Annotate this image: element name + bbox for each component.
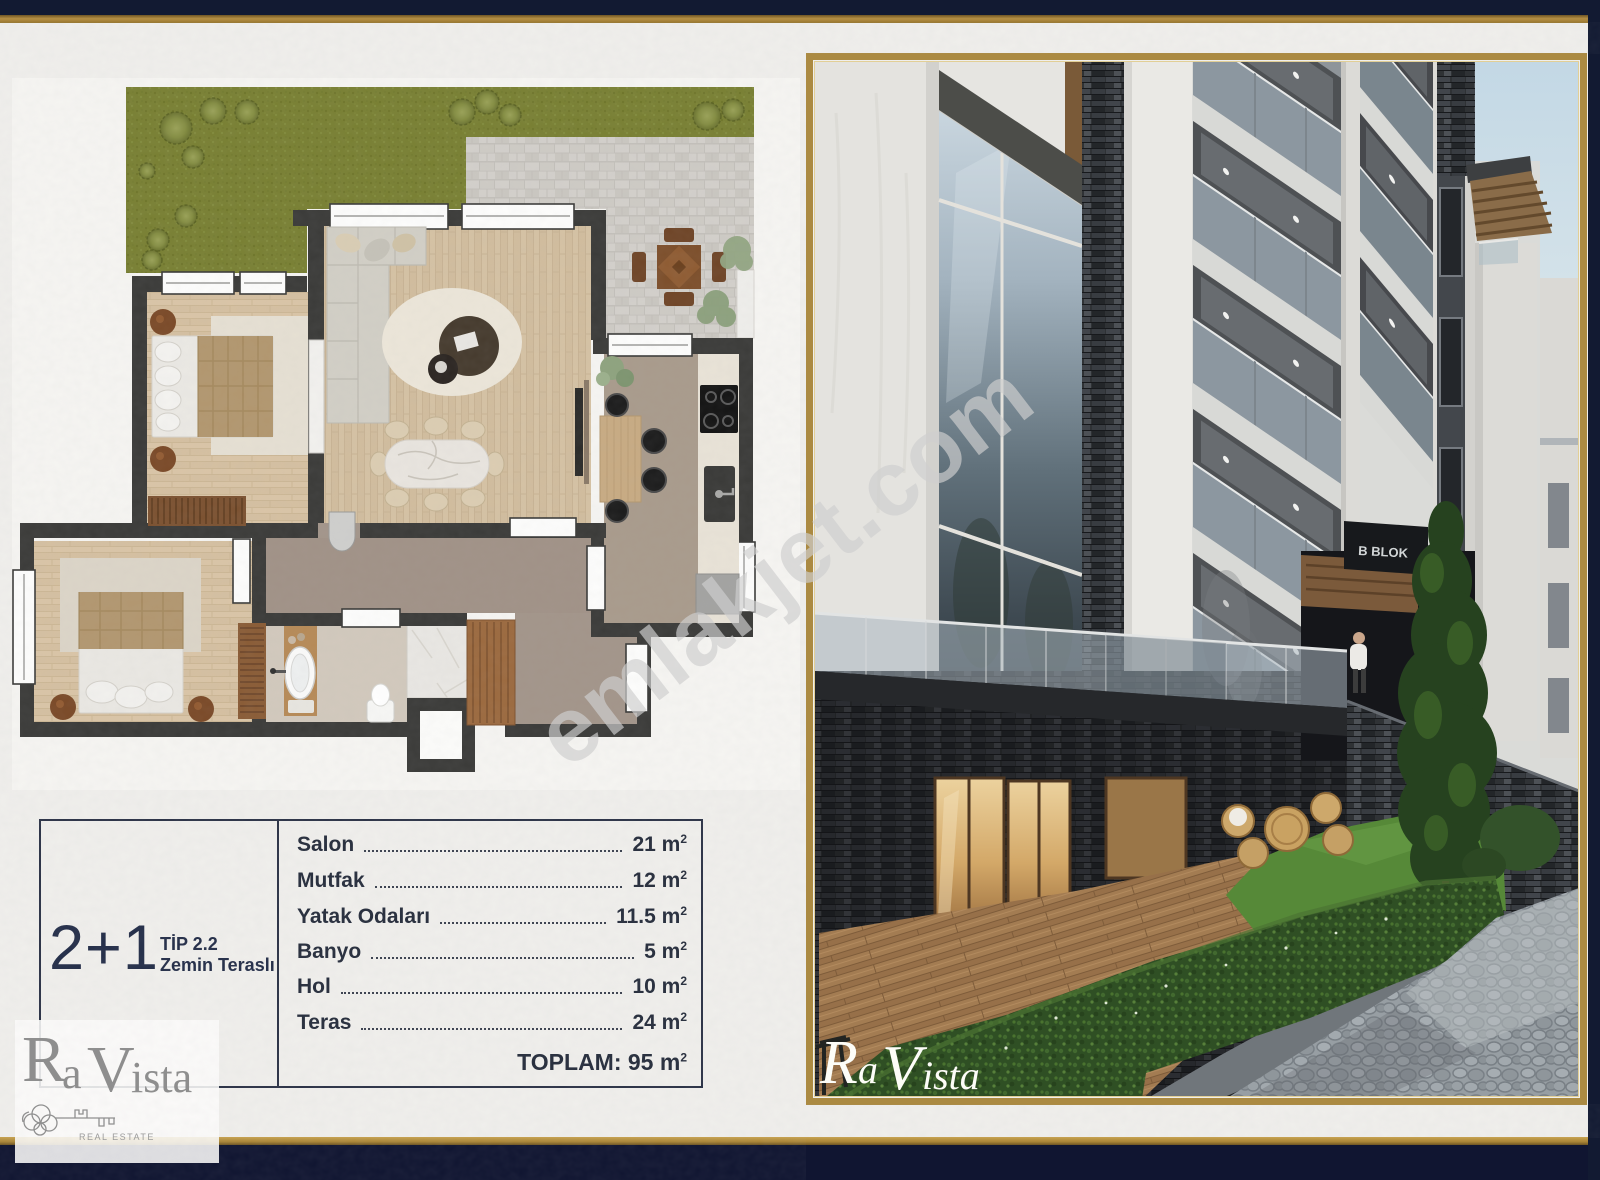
svg-text:ista: ista	[922, 1053, 980, 1098]
svg-text:a: a	[858, 1047, 878, 1092]
svg-text:R: R	[819, 1029, 858, 1097]
svg-text:B BLOK: B BLOK	[1358, 543, 1409, 561]
